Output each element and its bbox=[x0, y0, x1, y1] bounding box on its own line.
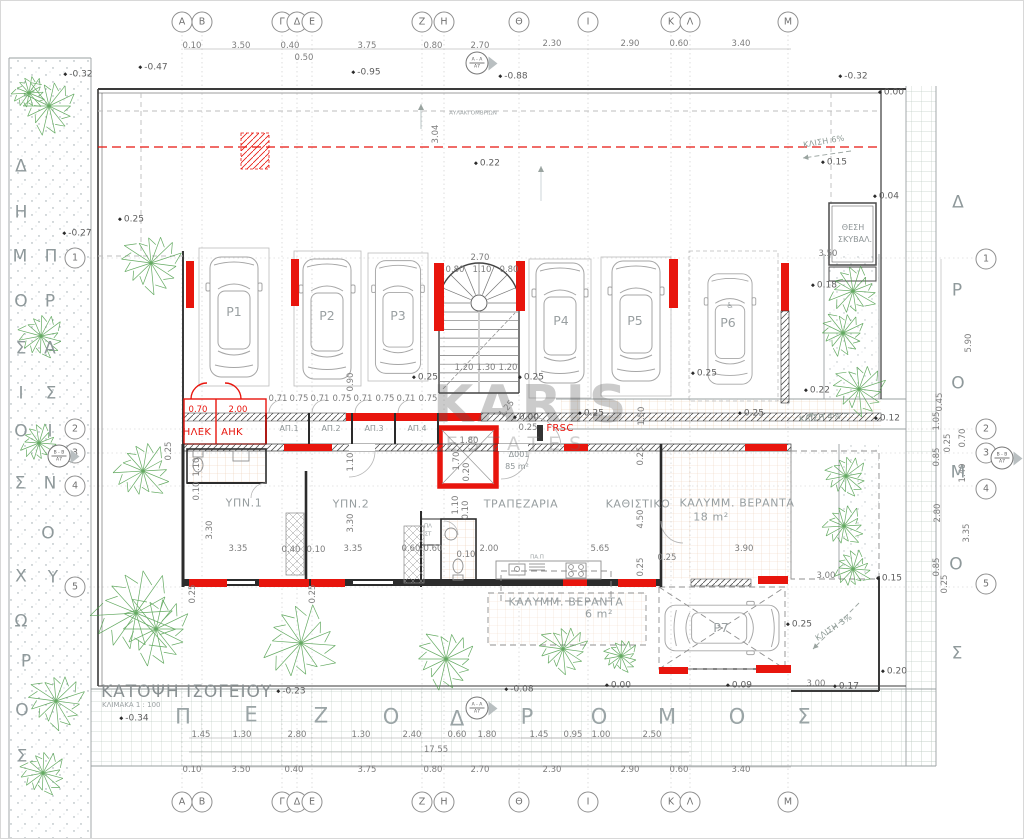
dim-label: 0.75 bbox=[333, 395, 352, 404]
street-letter: Ρ bbox=[21, 654, 31, 671]
dim-label: 1.10 bbox=[347, 453, 356, 472]
wheelchair-icon: ♿ bbox=[726, 302, 733, 310]
dim-label: 3.75 bbox=[358, 42, 377, 51]
slope-label: ΚΛΙΣΗ 6% bbox=[803, 134, 846, 149]
level-label: 0.25 bbox=[738, 410, 764, 419]
street-letter: Π bbox=[45, 249, 58, 266]
dim-label: 1.20 bbox=[455, 364, 474, 373]
dim-label: 4.50 bbox=[637, 510, 646, 529]
dim-label: 0.70 bbox=[959, 429, 968, 448]
dim-label: 0.95 bbox=[564, 731, 583, 740]
grid-bubble: Λ bbox=[680, 792, 701, 813]
level-label: 0.22 bbox=[804, 387, 830, 396]
dim-label: 0.80 bbox=[424, 42, 443, 51]
dim-label: 3.50 bbox=[232, 766, 251, 775]
street-letter: Ι bbox=[18, 386, 23, 403]
dim-label: 3.40 bbox=[732, 40, 751, 49]
section-marker: Β - ΒΑ7 bbox=[991, 447, 1014, 470]
dim-label: 1.05 bbox=[933, 412, 942, 431]
street-letter: Ι bbox=[47, 424, 52, 441]
room-label-small: ΑΠ.1 bbox=[279, 425, 298, 433]
slope-label: ΚΛΙΣΗ 4% bbox=[799, 413, 841, 424]
street-letter: Δ bbox=[952, 195, 964, 212]
dim-label: 1.70 bbox=[453, 452, 462, 471]
room-label-red: FRSC bbox=[546, 424, 573, 434]
level-label: 0.15 bbox=[821, 159, 847, 168]
grid-bubble: 5 bbox=[976, 574, 997, 595]
dim-label: 1.10 bbox=[452, 496, 461, 515]
street-letter: Ο bbox=[14, 294, 27, 311]
dim-label: 0.25 bbox=[658, 554, 677, 563]
room-label: ΤΡΑΠΕΖΑΡΙΑ bbox=[484, 499, 559, 510]
dim-label: 2.70 bbox=[471, 766, 490, 775]
annotation-label: ΠΑ.Π bbox=[530, 555, 544, 561]
dim-label: 0.25 bbox=[637, 447, 646, 466]
parking-label: P6 bbox=[720, 317, 736, 330]
room-label: 6 m² bbox=[585, 609, 613, 620]
dim-label: 3.50 bbox=[819, 250, 838, 259]
dim-label: 0.80 bbox=[424, 766, 443, 775]
grid-bubble: Ε bbox=[302, 12, 323, 33]
dim-label: 3.30 bbox=[206, 521, 215, 540]
dim-label: 1.30 bbox=[352, 731, 371, 740]
dim-label: 3.35 bbox=[229, 545, 248, 554]
dim-label: 1.45 bbox=[192, 731, 211, 740]
dim-label: 1.50 bbox=[638, 407, 647, 426]
dim-label: 2.30 bbox=[543, 766, 562, 775]
level-label: 0.00 bbox=[513, 414, 539, 423]
parking-label: P4 bbox=[553, 315, 569, 328]
grid-bubble: Θ bbox=[509, 792, 530, 813]
parking-label: P7 bbox=[713, 622, 729, 635]
dim-label: 3.40 bbox=[732, 766, 751, 775]
grid-bubble: Η bbox=[434, 792, 455, 813]
street-letter: Μ bbox=[658, 707, 676, 728]
level-label: -0.47 bbox=[138, 64, 167, 73]
level-label: 0.04 bbox=[873, 193, 899, 202]
level-label: -0.32 bbox=[63, 71, 92, 80]
room-label-small: ΑΠ.4 bbox=[407, 425, 426, 433]
dim-label-red: 0.70 bbox=[189, 406, 208, 415]
dim-label: 3.00 bbox=[817, 572, 836, 581]
street-letter: Ρ bbox=[952, 283, 962, 300]
annotation-label: ΣΤ bbox=[425, 532, 432, 538]
street-letter: Δ bbox=[450, 709, 464, 730]
dim-label: 3.30 bbox=[347, 514, 356, 533]
grid-bubble: Θ bbox=[509, 12, 530, 33]
dim-label: 0.90 bbox=[347, 373, 356, 392]
dim-label: 5.90 bbox=[965, 334, 974, 353]
grid-bubble: Ι bbox=[578, 792, 599, 813]
street-letter: Σ bbox=[15, 476, 26, 493]
grid-bubble: 2 bbox=[65, 419, 86, 440]
grid-bubble: Κ bbox=[661, 12, 682, 33]
street-letter: Δ bbox=[15, 159, 27, 176]
dim-label: 17.55 bbox=[424, 746, 448, 755]
street-letter: Ο bbox=[729, 707, 746, 728]
dim-label: 1.00 bbox=[592, 731, 611, 740]
dim-label: 0.25 bbox=[189, 585, 198, 604]
parking-label: P1 bbox=[226, 306, 242, 319]
dim-label: 0.10 bbox=[462, 501, 471, 520]
dim-label: 3.75 bbox=[358, 766, 377, 775]
dim-label: 3.04 bbox=[432, 125, 441, 144]
level-label: -0.32 bbox=[838, 73, 867, 82]
drawing-scale: ΚΛΙΜΑΚΑ 1 : 100 bbox=[102, 701, 161, 709]
room-label: ΚΑΘΙΣΤΙΚΟ bbox=[606, 499, 671, 510]
street-letter: Σ bbox=[46, 386, 57, 403]
street-letter: Σ bbox=[16, 341, 27, 358]
grid-bubble: Ζ bbox=[412, 792, 433, 813]
level-label: 0.12 bbox=[874, 415, 900, 424]
level-label: 0.25 bbox=[518, 374, 544, 383]
dim-label: 1.10 bbox=[473, 266, 492, 275]
dim-label: 0.71 bbox=[269, 395, 288, 404]
street-letter: Ρ bbox=[45, 294, 55, 311]
grid-bubble: Λ bbox=[680, 12, 701, 33]
dim-label: 0.25 bbox=[941, 575, 950, 594]
dim-label: 1.10 bbox=[193, 458, 202, 477]
level-label: -0.27 bbox=[62, 230, 91, 239]
room-label-small: ΘΕΣΗ bbox=[842, 224, 864, 232]
dim-label: 0.25 bbox=[519, 424, 538, 433]
dim-label: 3.50 bbox=[232, 42, 251, 51]
grid-bubble: 2 bbox=[976, 419, 997, 440]
parking-label: P5 bbox=[627, 315, 643, 328]
grid-bubble: Β bbox=[192, 12, 213, 33]
street-letter: Ο bbox=[41, 526, 54, 543]
dim-label: 3.90 bbox=[735, 545, 754, 554]
room-label: ΥΠΝ.1 bbox=[226, 498, 263, 509]
dim-label: 2.90 bbox=[621, 40, 640, 49]
level-label: 0.09 bbox=[726, 682, 752, 691]
street-letter: Ο bbox=[949, 557, 962, 574]
level-label: 0.25 bbox=[786, 621, 812, 630]
grid-bubble: 5 bbox=[65, 577, 86, 598]
level-label: -0.23 bbox=[276, 688, 305, 697]
dim-label: 0.75 bbox=[419, 395, 438, 404]
room-label-small: ΣΚΥΒΑΛ. bbox=[838, 236, 872, 244]
dim-label: 0.25 bbox=[309, 585, 318, 604]
street-letter: Υ bbox=[48, 570, 58, 587]
room-label-red: ΗΛΕΚ bbox=[183, 428, 211, 438]
annotation-label: ΠΛ bbox=[424, 524, 432, 530]
level-label: 0.20 bbox=[881, 668, 907, 677]
dim-label: 0.10 bbox=[457, 551, 476, 560]
dim-label: 3.35 bbox=[344, 545, 363, 554]
room-label: 18 m² bbox=[693, 512, 729, 523]
dim-label: 0.71 bbox=[354, 395, 373, 404]
room-label: ΚΑΛΥΜΜ. ΒΕΡΑΝΤΑ bbox=[508, 597, 623, 608]
street-letter: Ο bbox=[14, 424, 27, 441]
dim-label: 0.60 bbox=[670, 766, 689, 775]
dim-label: 2.80 bbox=[288, 731, 307, 740]
dim-label: 0.25 bbox=[165, 442, 174, 461]
dim-label: 0.80 bbox=[446, 266, 465, 275]
level-label: 0.17 bbox=[833, 683, 859, 692]
street-letter: Μ bbox=[951, 465, 966, 482]
street-letter: Α bbox=[44, 341, 56, 358]
annotation-label: ΑΥΛΑΚΙ ΟΜΒΡΙΩΝ bbox=[449, 111, 497, 117]
street-letter: Ο bbox=[15, 703, 28, 720]
grid-bubble: 1 bbox=[976, 249, 997, 270]
level-label: 0.25 bbox=[118, 216, 144, 225]
street-letter: Η bbox=[15, 205, 28, 222]
dim-label: 1.30 bbox=[233, 731, 252, 740]
level-label: -0.08 bbox=[504, 686, 533, 695]
grid-bubble: Α bbox=[172, 12, 193, 33]
street-letter: Σ bbox=[952, 646, 963, 663]
dim-label: 2.70 bbox=[471, 254, 490, 263]
dim-label: 0.40 bbox=[285, 766, 304, 775]
grid-bubble: Α bbox=[172, 792, 193, 813]
level-label: 0.25 bbox=[578, 410, 604, 419]
street-letter: Ν bbox=[44, 476, 57, 493]
grid-bubble: Β bbox=[192, 792, 213, 813]
dim-label: 0.25 bbox=[637, 558, 646, 577]
dim-label: 0.25 bbox=[944, 434, 953, 453]
street-letter: Σ bbox=[17, 749, 28, 766]
dim-label: 0.40 bbox=[281, 42, 300, 51]
parking-label: P2 bbox=[319, 310, 335, 323]
level-label: 0.00 bbox=[878, 89, 904, 98]
dim-label: 1.20 bbox=[499, 364, 518, 373]
slope-label: ΚΛΙΣΗ 3% bbox=[814, 613, 853, 642]
level-label: 0.15 bbox=[876, 575, 902, 584]
street-letter: Π bbox=[175, 707, 191, 728]
section-marker: Β - ΒΑ7 bbox=[48, 445, 71, 468]
level-label: 0.00 bbox=[605, 682, 631, 691]
grid-bubble: 4 bbox=[65, 476, 86, 497]
street-letter: Μ bbox=[13, 249, 28, 266]
level-label: -0.88 bbox=[498, 73, 527, 82]
dim-label: 2.70 bbox=[471, 42, 490, 51]
dim-label: 1.80 bbox=[478, 731, 497, 740]
dim-label: 0.20 bbox=[463, 463, 472, 482]
dim-label: 2.40 bbox=[403, 731, 422, 740]
dim-label: 0.80 bbox=[500, 266, 519, 275]
dim-label: 0.71 bbox=[397, 395, 416, 404]
room-label-small: 85 m² bbox=[505, 463, 529, 471]
dim-label: 5.65 bbox=[591, 545, 610, 554]
dim-label: 0.75 bbox=[376, 395, 395, 404]
grid-bubble: 4 bbox=[976, 479, 997, 500]
dim-label: 2.30 bbox=[543, 40, 562, 49]
level-label: 0.22 bbox=[474, 160, 500, 169]
grid-bubble: 1 bbox=[65, 248, 86, 269]
dim-label-red: 2.00 bbox=[229, 406, 248, 415]
section-marker: Α - ΑΑ7 bbox=[466, 52, 489, 75]
dim-label: 2.50 bbox=[643, 731, 662, 740]
street-letter: Ρ bbox=[521, 707, 534, 728]
level-label: 0.25 bbox=[412, 374, 438, 383]
dim-label: 0.60 bbox=[402, 545, 421, 554]
street-letter: Ο bbox=[383, 707, 400, 728]
dim-label: 0.10 bbox=[193, 482, 202, 501]
room-label-red: ΑΗΚ bbox=[221, 428, 243, 438]
grid-bubble: Ε bbox=[302, 792, 323, 813]
dim-label: 0.75 bbox=[290, 395, 309, 404]
room-label-small: ΑΠ.3 bbox=[364, 425, 383, 433]
level-label: -0.34 bbox=[119, 715, 148, 724]
annotation-layer: 0.103.500.400.503.750.802.702.302.900.60… bbox=[1, 1, 1024, 839]
dim-label: 1.80 bbox=[460, 437, 479, 446]
dim-label: 0.50 bbox=[295, 54, 314, 63]
grid-bubble: Μ bbox=[778, 12, 799, 33]
grid-bubble: Ζ bbox=[412, 12, 433, 33]
dim-label: 0.45 bbox=[936, 393, 945, 412]
dim-label: 2.00 bbox=[480, 545, 499, 554]
room-label-small: Δ001 bbox=[509, 451, 530, 459]
street-letter: Ε bbox=[244, 705, 257, 726]
dim-label: 3.00 bbox=[807, 680, 826, 689]
dim-label: 3.35 bbox=[963, 524, 972, 543]
parking-label: P3 bbox=[390, 310, 406, 323]
street-letter: Ο bbox=[951, 376, 964, 393]
dim-label: 0.60 bbox=[670, 40, 689, 49]
room-label-small: ΑΠ.2 bbox=[321, 425, 340, 433]
dim-label: 0.10 bbox=[307, 546, 326, 555]
level-label: 0.18 bbox=[811, 282, 837, 291]
dim-label: 0.10 bbox=[183, 42, 202, 51]
room-label: ΚΑΛΥΜΜ. ΒΕΡΑΝΤΑ bbox=[679, 498, 794, 509]
dim-label: 1.45 bbox=[530, 731, 549, 740]
street-letter: Ζ bbox=[314, 706, 328, 727]
dim-label: 1.30 bbox=[477, 364, 496, 373]
street-letter: Χ bbox=[15, 569, 27, 586]
drawing-title: ΚΑΤΟΨΗ ΙΣΟΓΕΙΟΥ bbox=[101, 682, 272, 702]
room-label: ΥΠΝ.2 bbox=[333, 499, 370, 510]
level-label: 0.25 bbox=[691, 370, 717, 379]
grid-bubble: Η bbox=[434, 12, 455, 33]
level-label: -0.95 bbox=[351, 69, 380, 78]
dim-label: 0.60 bbox=[424, 545, 443, 554]
street-letter: Σ bbox=[797, 707, 810, 728]
dim-label: 0.10 bbox=[183, 766, 202, 775]
grid-bubble: Κ bbox=[661, 792, 682, 813]
street-letter: Ω bbox=[15, 614, 28, 631]
dim-label: 0.85 bbox=[933, 448, 942, 467]
dim-label: 2.90 bbox=[621, 766, 640, 775]
section-marker: Α - ΑΑ7 bbox=[466, 697, 489, 720]
street-letter: Ο bbox=[591, 707, 608, 728]
dim-label: 0.40 bbox=[282, 546, 301, 555]
floor-plan-sheet: KARIS ESTATES 0.103.500.400.503.750.802.… bbox=[0, 0, 1024, 839]
grid-bubble: Μ bbox=[778, 792, 799, 813]
dim-label: 0.60 bbox=[448, 731, 467, 740]
dim-label: 0.71 bbox=[311, 395, 330, 404]
grid-bubble: Ι bbox=[578, 12, 599, 33]
dim-label: 2.80 bbox=[934, 504, 943, 523]
